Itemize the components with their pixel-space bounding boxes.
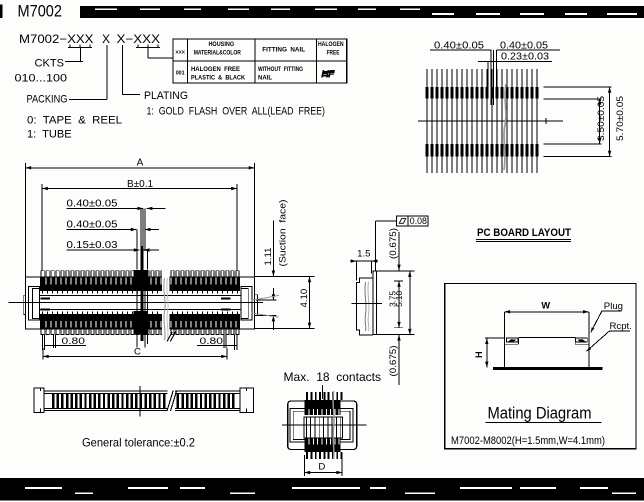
svg-text:XXX: XXX [175,50,185,56]
svg-text:0.40±0.05: 0.40±0.05 [67,219,119,230]
svg-text:M7002-M8002(H=1.5mm,W=4.1mm): M7002-M8002(H=1.5mm,W=4.1mm) [451,435,605,447]
svg-text:PC BOARD LAYOUT: PC BOARD LAYOUT [477,227,571,239]
svg-text:PLATING: PLATING [144,90,188,102]
svg-text:WITHOUT FITTING: WITHOUT FITTING [258,66,303,73]
svg-text:Mating Diagram: Mating Diagram [488,405,592,423]
svg-text:A: A [137,158,144,169]
svg-text:1: TUBE: 1: TUBE [27,128,72,140]
svg-text:M7002−XXX: M7002−XXX [19,32,94,46]
svg-text:Rcpt.: Rcpt. [610,321,632,332]
svg-text:5.10: 5.10 [395,291,404,307]
svg-text:3.50±0.05: 3.50±0.05 [596,96,607,141]
svg-text:0: TAPE & REEL: 0: TAPE & REEL [27,115,122,127]
svg-text:001: 001 [176,71,185,77]
svg-text:FREE: FREE [327,50,340,57]
svg-text:FITTING NAIL: FITTING NAIL [262,47,305,54]
svg-text:HALOGEN FREE: HALOGEN FREE [191,66,241,73]
svg-text:MATERIAL&COLOR: MATERIAL&COLOR [194,50,241,57]
svg-text:(0.675): (0.675) [388,346,399,377]
svg-text:0.40±0.05: 0.40±0.05 [67,198,119,209]
svg-text:0.08: 0.08 [410,216,427,226]
svg-text:HOUSING: HOUSING [208,41,234,48]
svg-text:010...100: 010...100 [15,73,68,85]
svg-text:0.15±0.03: 0.15±0.03 [67,240,119,251]
svg-text:HF: HF [321,69,335,81]
svg-text:General tolerance:±0.2: General tolerance:±0.2 [82,437,195,450]
svg-text:M7002: M7002 [18,3,63,21]
svg-text:X−XXX: X−XXX [117,32,161,46]
svg-text:C: C [134,346,141,357]
svg-text:1.5: 1.5 [357,248,370,259]
svg-text:NAIL: NAIL [258,75,272,82]
svg-text:D: D [318,462,325,473]
svg-text:1: GOLD FLASH OVER ALL(LEA: 1: GOLD FLASH OVER ALL(LEAD FREE) [147,106,326,118]
svg-text:Max. 18 contacts: Max. 18 contacts [284,371,382,384]
svg-text:H: H [474,351,484,358]
svg-text:(Suction face): (Suction face) [278,200,289,267]
svg-text:4.10: 4.10 [299,289,310,308]
svg-text:X: X [102,32,110,46]
svg-text:5.70±0.05: 5.70±0.05 [615,96,626,141]
svg-text:PACKING: PACKING [27,94,68,106]
svg-text:W: W [541,301,550,311]
svg-text:(0.675): (0.675) [388,228,399,259]
svg-text:CKTS: CKTS [35,58,65,70]
svg-text:1.11: 1.11 [263,248,274,266]
svg-text:PLASTIC & BLACK: PLASTIC & BLACK [191,75,245,82]
svg-text:HALOGEN: HALOGEN [318,41,344,48]
